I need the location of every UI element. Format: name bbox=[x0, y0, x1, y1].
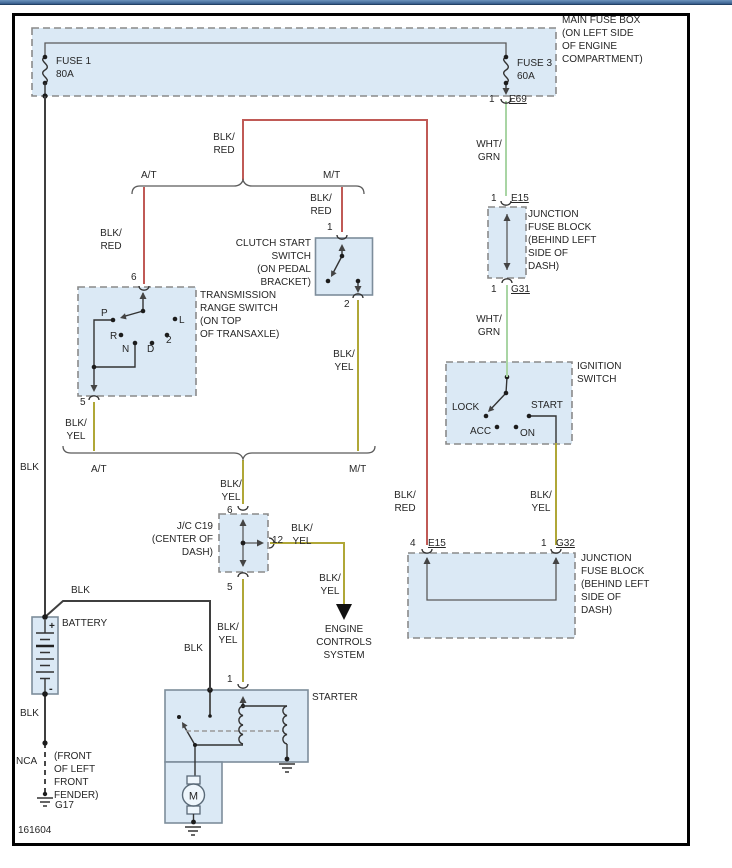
ground-symbol-motor bbox=[185, 827, 201, 835]
ignition-position-on: ON bbox=[520, 427, 535, 440]
wire-label-whtgrn-1: WHT/ GRN bbox=[475, 138, 503, 164]
wiring-diagram-page: + - bbox=[0, 0, 732, 868]
jc-c19-label: J/C C19 (CENTER OF DASH) bbox=[152, 520, 213, 559]
jb-lower-pin-1: 1 bbox=[541, 537, 547, 550]
trs-position-p: P bbox=[101, 307, 108, 320]
jc-pin-12: 12 bbox=[272, 534, 283, 547]
connector-g32: G32 bbox=[556, 537, 575, 550]
starter-pin-1: 1 bbox=[227, 673, 233, 686]
junction-fuse-block-lower bbox=[408, 553, 575, 638]
wire-label-whtgrn-2: WHT/ GRN bbox=[475, 313, 503, 339]
connector-e15-upper: E15 bbox=[511, 192, 529, 205]
junction-fuse-block-upper bbox=[488, 207, 526, 278]
battery-plus-sign: + bbox=[49, 621, 55, 632]
wire-label-blk-bottom: BLK bbox=[20, 707, 39, 720]
e69-pin-number: 1 bbox=[489, 93, 495, 106]
trs-position-2: 2 bbox=[166, 334, 172, 347]
battery-symbol: + - bbox=[32, 617, 58, 695]
transmission-range-switch-box bbox=[78, 287, 196, 396]
wire-label-blkred-mt: BLK/ RED bbox=[307, 192, 335, 218]
jb-upper-label: JUNCTION FUSE BLOCK (BEHIND LEFT SIDE OF… bbox=[528, 208, 596, 273]
wire-label-blkyel-at: BLK/ YEL bbox=[62, 417, 90, 443]
wire-label-blk-main: BLK bbox=[20, 461, 39, 474]
trs-position-d: D bbox=[147, 343, 154, 356]
wire-label-blk-starter: BLK bbox=[184, 642, 203, 655]
connector-e15-lower: E15 bbox=[428, 537, 446, 550]
main-fuse-box-label: MAIN FUSE BOX (ON LEFT SIDE OF ENGINE CO… bbox=[562, 14, 643, 66]
trs-position-l: L bbox=[179, 314, 185, 327]
ground-symbol-starter bbox=[279, 764, 295, 772]
clutch-switch-label: CLUTCH START SWITCH (ON PEDAL BRACKET) bbox=[236, 237, 311, 289]
trs-label: TRANSMISSION RANGE SWITCH (ON TOP OF TRA… bbox=[200, 289, 279, 341]
branch-at-lower: A/T bbox=[91, 463, 107, 476]
trs-pin-5: 5 bbox=[80, 396, 86, 409]
wire-label-blkyel-ign: BLK/ YEL bbox=[527, 489, 555, 515]
branch-at-upper: A/T bbox=[141, 169, 157, 182]
main-fuse-box bbox=[32, 28, 556, 99]
diagram-graphics: + - bbox=[0, 0, 732, 868]
ignition-position-start: START bbox=[531, 399, 563, 412]
connector-e69: E69 bbox=[509, 93, 527, 106]
jc-pin-5: 5 bbox=[227, 581, 233, 594]
jb-upper-pin-bottom: 1 bbox=[491, 283, 497, 296]
ground-g17-label: G17 bbox=[55, 799, 74, 812]
trs-position-n: N bbox=[122, 343, 129, 356]
connector-g31: G31 bbox=[511, 283, 530, 296]
clutch-pin-2: 2 bbox=[344, 298, 350, 311]
wire-label-blkred-top: BLK/ RED bbox=[210, 131, 238, 157]
merge-brace-lower bbox=[63, 446, 375, 459]
starter-label: STARTER bbox=[312, 691, 358, 704]
wire-label-blkred-at: BLK/ RED bbox=[97, 227, 125, 253]
trs-position-r: R bbox=[110, 330, 117, 343]
wire-label-blkyel-engine: BLK/ YEL bbox=[316, 572, 344, 598]
wire-label-nca: NCA bbox=[16, 755, 37, 768]
wire-label-blkyel-center: BLK/ YEL bbox=[217, 478, 245, 504]
clutch-start-switch-box bbox=[316, 238, 373, 295]
wire-label-blkred-right: BLK/ RED bbox=[391, 489, 419, 515]
branch-mt-lower: M/T bbox=[349, 463, 366, 476]
wire-label-blkyel-bottom: BLK/ YEL bbox=[214, 621, 242, 647]
fuse1-label: FUSE 1 80A bbox=[56, 55, 91, 81]
ignition-position-lock: LOCK bbox=[452, 401, 479, 414]
ground-g17-note: (FRONT OF LEFT FRONT FENDER) bbox=[54, 750, 98, 802]
motor-m-label: M bbox=[189, 791, 198, 803]
branch-mt-upper: M/T bbox=[323, 169, 340, 182]
battery-minus-sign: - bbox=[49, 683, 53, 695]
engine-controls-label: ENGINE CONTROLS SYSTEM bbox=[306, 623, 382, 662]
ground-symbol-g17 bbox=[37, 798, 53, 806]
figure-number: 161604 bbox=[18, 824, 51, 837]
jb-upper-pin-top: 1 bbox=[491, 192, 497, 205]
jb-lower-pin-4: 4 bbox=[410, 537, 416, 550]
jb-lower-label: JUNCTION FUSE BLOCK (BEHIND LEFT SIDE OF… bbox=[581, 552, 649, 617]
clutch-pin-1: 1 bbox=[327, 221, 333, 234]
ignition-switch-label: IGNITION SWITCH bbox=[577, 360, 621, 386]
starter-box: M bbox=[165, 687, 308, 835]
trs-pin-6: 6 bbox=[131, 271, 137, 284]
battery-label: BATTERY bbox=[62, 617, 107, 630]
jc-c19-box bbox=[219, 514, 274, 572]
ignition-position-acc: ACC bbox=[470, 425, 491, 438]
wire-label-blkyel-12: BLK/ YEL bbox=[288, 522, 316, 548]
fuse3-label: FUSE 3 60A bbox=[517, 57, 552, 83]
wire-label-blk-battery-top: BLK bbox=[71, 584, 90, 597]
engine-controls-arrow bbox=[336, 604, 352, 620]
jc-pin-6: 6 bbox=[227, 504, 233, 517]
wire-label-blkyel-mt: BLK/ YEL bbox=[330, 348, 358, 374]
